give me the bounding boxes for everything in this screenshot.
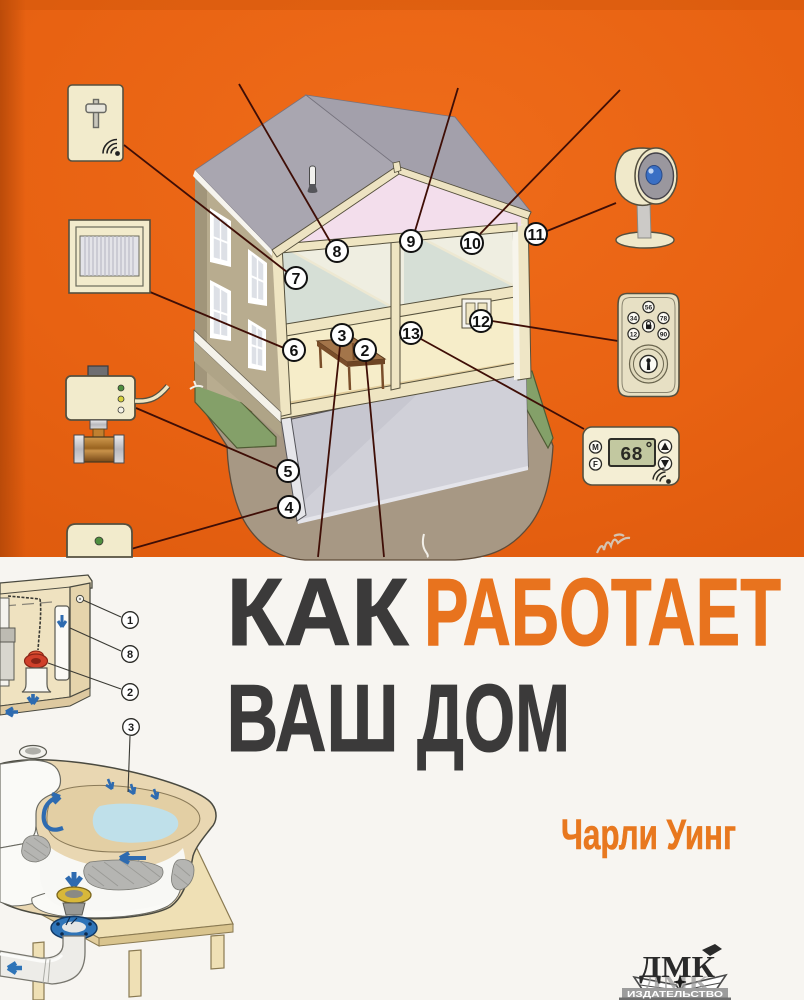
svg-text:68: 68	[620, 444, 643, 466]
svg-text:8: 8	[333, 244, 342, 261]
svg-text:F: F	[593, 460, 598, 469]
svg-text:ДОМ: ДОМ	[417, 665, 570, 772]
svg-text:5: 5	[284, 464, 293, 481]
svg-text:13: 13	[402, 326, 420, 343]
svg-text:90: 90	[660, 331, 668, 338]
svg-text:ИЗДАТЕЛЬСТВО: ИЗДАТЕЛЬСТВО	[627, 989, 724, 999]
svg-text:РАБОТАЕТ: РАБОТАЕТ	[424, 559, 781, 666]
svg-text:ДМК: ДМК	[639, 949, 716, 984]
svg-text:КАК: КАК	[227, 559, 409, 666]
svg-text:12: 12	[472, 314, 490, 331]
svg-text:Чарли Уинг: Чарли Уинг	[561, 811, 736, 859]
svg-text:12: 12	[630, 331, 638, 338]
svg-text:1: 1	[127, 615, 133, 627]
svg-text:3: 3	[128, 722, 134, 734]
svg-text:2: 2	[361, 343, 370, 360]
svg-text:11: 11	[528, 227, 545, 244]
svg-text:56: 56	[645, 304, 653, 311]
svg-text:M: M	[592, 443, 599, 452]
svg-text:3: 3	[338, 328, 347, 345]
svg-text:ВАШ: ВАШ	[227, 665, 399, 772]
svg-text:4: 4	[285, 500, 294, 517]
svg-text:78: 78	[660, 315, 668, 322]
svg-text:9: 9	[407, 234, 416, 251]
svg-text:34: 34	[630, 315, 638, 322]
svg-text:2: 2	[127, 687, 133, 699]
svg-text:6: 6	[290, 343, 299, 360]
svg-text:7: 7	[292, 271, 301, 288]
svg-text:8: 8	[127, 649, 133, 661]
svg-text:10: 10	[463, 236, 481, 253]
